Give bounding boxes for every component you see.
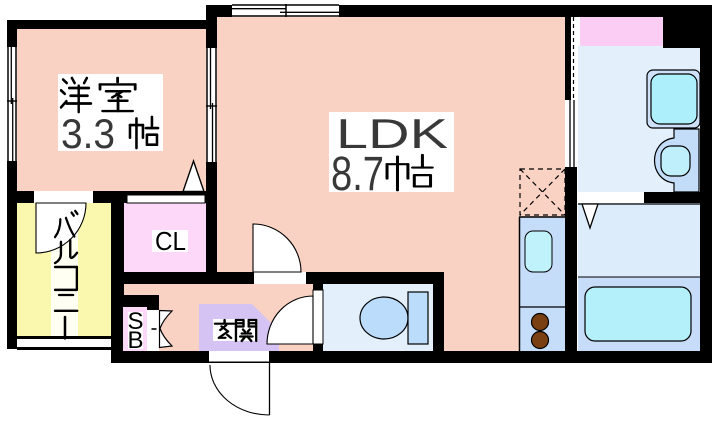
svg-text:8.7: 8.7 [331,148,384,201]
svg-text:B: B [127,327,143,354]
svg-text:CL: CL [155,226,186,256]
svg-text:3.3: 3.3 [61,110,115,157]
